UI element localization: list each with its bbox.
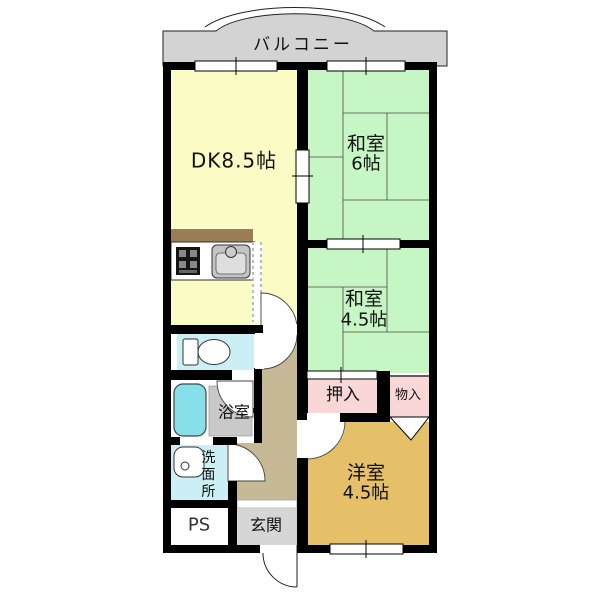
- washitsu-4-5-label: 和室: [345, 290, 383, 310]
- monoire-label: 物入: [395, 389, 421, 403]
- floor-plan: バルコニー DK8.5帖 和室 6帖 和室 4.5帖 押入 物入 洋室 4.5帖…: [0, 0, 600, 600]
- youshitsu-size: 4.5帖: [343, 485, 390, 504]
- washitsu-4-5-size: 4.5帖: [341, 312, 388, 331]
- kitchen-sink-icon: [212, 245, 250, 278]
- dining-kitchen-floor: [171, 70, 298, 325]
- toilet-icon: [183, 339, 230, 365]
- floor-plan-drawing: [0, 0, 600, 600]
- bathroom-label: 浴室: [218, 405, 250, 422]
- kitchen-counter-bar: [171, 229, 253, 242]
- dining-kitchen-label: DK8.5帖: [191, 151, 277, 172]
- kitchen-partition-dashed: [252, 242, 262, 322]
- balcony-label: バルコニー: [253, 37, 353, 55]
- entrance-door: [263, 545, 297, 587]
- entrance-label: 玄関: [250, 518, 282, 535]
- bathtub-icon: [174, 384, 206, 436]
- washroom-label: 洗面所: [200, 450, 215, 501]
- pipe-space-label: PS: [188, 517, 210, 536]
- oshiire-label: 押入: [326, 387, 360, 405]
- washitsu-6-label: 和室: [347, 135, 385, 155]
- entrance-step: [237, 500, 297, 508]
- washitsu-6-size: 6帖: [351, 156, 380, 175]
- stove-icon: [176, 247, 200, 275]
- youshitsu-label: 洋室: [347, 464, 385, 484]
